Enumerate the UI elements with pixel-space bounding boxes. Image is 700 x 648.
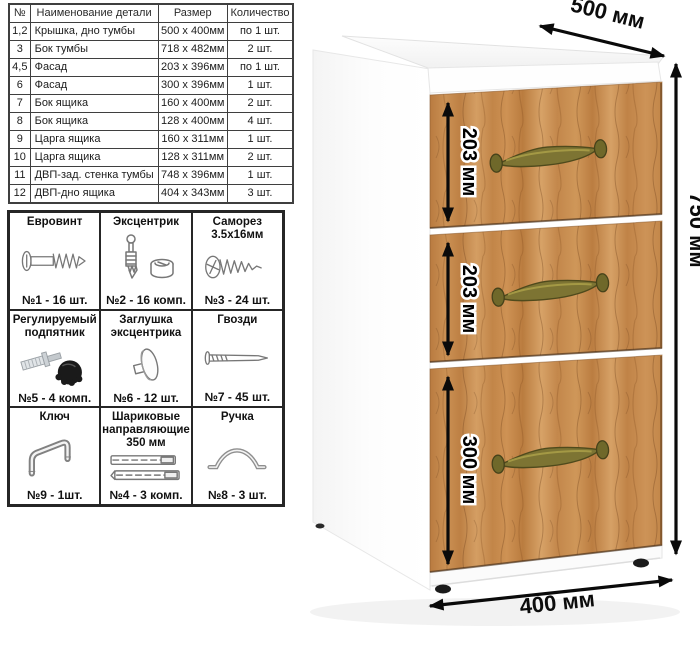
- table-cell: Бок тумбы: [30, 41, 158, 59]
- assembly-instruction-sheet: 500 мм 750 мм 400 мм 203 мм 203 мм 300 м…: [0, 0, 700, 648]
- table-row: 4,5Фасад203 х 396ммпо 1 шт.: [9, 59, 293, 77]
- table-row: 8Бок ящика128 х 400мм4 шт.: [9, 113, 293, 131]
- table-cell: 7: [9, 95, 30, 113]
- hardware-item-ball-slides: Шариковые направляющие 350 мм №4 - 3 ком…: [100, 407, 191, 505]
- table-row: 11ДВП-зад. стенка тумбы748 х 396мм1 шт.: [9, 167, 293, 185]
- table-cell: 3 шт.: [227, 185, 293, 204]
- table-cell: 11: [9, 167, 30, 185]
- hardware-count: №4 - 3 комп.: [109, 488, 182, 502]
- table-cell: 128 х 311мм: [158, 149, 227, 167]
- table-cell: 160 х 311мм: [158, 131, 227, 149]
- hardware-name: Регулируемый подпятник: [12, 314, 97, 340]
- table-cell: ДВП-зад. стенка тумбы: [30, 167, 158, 185]
- table-cell: 4 шт.: [227, 113, 293, 131]
- table-cell: 500 х 400мм: [158, 23, 227, 41]
- table-row: 1,2Крышка, дно тумбы500 х 400ммпо 1 шт.: [9, 23, 293, 41]
- hardware-name: Ключ: [39, 411, 69, 424]
- parts-table-header-row: №Наименование деталиРазмерКоличество: [9, 4, 293, 23]
- table-row: 10Царга ящика128 х 311мм2 шт.: [9, 149, 293, 167]
- table-row: 7Бок ящика160 х 400мм2 шт.: [9, 95, 293, 113]
- column-header: Размер: [158, 4, 227, 23]
- table-cell: 1 шт.: [227, 167, 293, 185]
- hardware-name: Эксцентрик: [113, 216, 179, 229]
- table-cell: 748 х 396мм: [158, 167, 227, 185]
- table-cell: ДВП-дно ящика: [30, 185, 158, 204]
- ball-slides-icon: [103, 450, 188, 488]
- hardware-grid: Евровинт №1 - 16 шт. Эксцентрик: [7, 210, 285, 507]
- table-cell: 1 шт.: [227, 131, 293, 149]
- table-cell: 203 х 396мм: [158, 59, 227, 77]
- table-cell: 718 х 482мм: [158, 41, 227, 59]
- hardware-name: Заглушка эксцентрика: [103, 314, 188, 340]
- table-row: 6Фасад300 х 396мм1 шт.: [9, 77, 293, 95]
- hardware-name: Гвозди: [217, 314, 257, 327]
- table-cell: Бок ящика: [30, 95, 158, 113]
- hardware-item-camlock: Эксцентрик №2 - 16 комп.: [100, 212, 191, 310]
- hardware-count: №6 - 12 шт.: [113, 391, 179, 405]
- drawer-1-dimension-label: 203 мм: [458, 128, 480, 197]
- drawer-3-dimension-label: 300 мм: [458, 436, 480, 505]
- table-cell: 1 шт.: [227, 77, 293, 95]
- hardware-count: №9 - 1шт.: [27, 488, 83, 502]
- drawer-2-dimension-label: 203 мм: [458, 265, 480, 334]
- hardware-count: №3 - 24 шт.: [205, 293, 271, 307]
- table-cell: Фасад: [30, 59, 158, 77]
- table-row: 9Царга ящика160 х 311мм1 шт.: [9, 131, 293, 149]
- parts-table: №Наименование деталиРазмерКоличество 1,2…: [8, 3, 294, 204]
- column-header: Количество: [227, 4, 293, 23]
- height-dimension-label: 750 мм: [685, 192, 700, 267]
- hardware-item-nails: Гвозди №7 - 45 шт.: [192, 310, 283, 408]
- nail-icon: [195, 327, 280, 391]
- table-cell: 2 шт.: [227, 41, 293, 59]
- table-cell: Царга ящика: [30, 149, 158, 167]
- euro-screw-icon: [12, 229, 97, 293]
- hardware-count: №2 - 16 комп.: [106, 293, 186, 307]
- cam-cap-icon: [103, 339, 188, 391]
- table-cell: Бок ящика: [30, 113, 158, 131]
- cabinet-foot: [435, 585, 451, 594]
- hardware-count: №7 - 45 шт.: [205, 390, 271, 404]
- table-cell: 10: [9, 149, 30, 167]
- adjustable-foot-icon: [12, 339, 97, 391]
- handle-icon: [195, 424, 280, 488]
- hardware-count: №5 - 4 комп.: [18, 391, 91, 405]
- table-cell: 4,5: [9, 59, 30, 77]
- table-cell: 6: [9, 77, 30, 95]
- cabinet-foot: [633, 559, 649, 568]
- table-cell: 2 шт.: [227, 149, 293, 167]
- hardware-item-adjustable-foot: Регулируемый подпятник: [9, 310, 100, 408]
- hardware-item-selftapping-screw: Саморез 3.5х16мм №3 - 24 шт.: [192, 212, 283, 310]
- table-cell: 9: [9, 131, 30, 149]
- table-cell: Царга ящика: [30, 131, 158, 149]
- table-cell: 404 х 343мм: [158, 185, 227, 204]
- hardware-item-euroscrew: Евровинт №1 - 16 шт.: [9, 212, 100, 310]
- hardware-name: Саморез 3.5х16мм: [195, 216, 280, 242]
- table-cell: 8: [9, 113, 30, 131]
- table-cell: 2 шт.: [227, 95, 293, 113]
- hardware-count: №1 - 16 шт.: [22, 293, 88, 307]
- hardware-item-key: Ключ №9 - 1шт.: [9, 407, 100, 505]
- table-cell: Фасад: [30, 77, 158, 95]
- hardware-item-cam-cap: Заглушка эксцентрика №6 - 12 шт.: [100, 310, 191, 408]
- hardware-name: Шариковые направляющие 350 мм: [102, 411, 190, 450]
- hardware-item-handle: Ручка №8 - 3 шт.: [192, 407, 283, 505]
- column-header: №: [9, 4, 30, 23]
- cam-lock-icon: [103, 229, 188, 293]
- width-dimension-label: 500 мм: [568, 0, 647, 34]
- hex-key-icon: [12, 424, 97, 488]
- table-cell: 160 х 400мм: [158, 95, 227, 113]
- self-tapping-screw-icon: [195, 242, 280, 293]
- table-cell: 12: [9, 185, 30, 204]
- hardware-name: Евровинт: [27, 216, 83, 229]
- cabinet-foot: [316, 524, 325, 529]
- table-row: 12ДВП-дно ящика404 х 343мм3 шт.: [9, 185, 293, 204]
- table-cell: 128 х 400мм: [158, 113, 227, 131]
- hardware-count: №8 - 3 шт.: [208, 488, 267, 502]
- floor-shadow: [310, 598, 680, 626]
- table-cell: по 1 шт.: [227, 59, 293, 77]
- table-cell: 300 х 396мм: [158, 77, 227, 95]
- table-row: 3Бок тумбы718 х 482мм2 шт.: [9, 41, 293, 59]
- table-cell: Крышка, дно тумбы: [30, 23, 158, 41]
- table-cell: 3: [9, 41, 30, 59]
- table-cell: по 1 шт.: [227, 23, 293, 41]
- column-header: Наименование детали: [30, 4, 158, 23]
- table-cell: 1,2: [9, 23, 30, 41]
- hardware-name: Ручка: [221, 411, 254, 424]
- cabinet-side-panel: [313, 50, 430, 590]
